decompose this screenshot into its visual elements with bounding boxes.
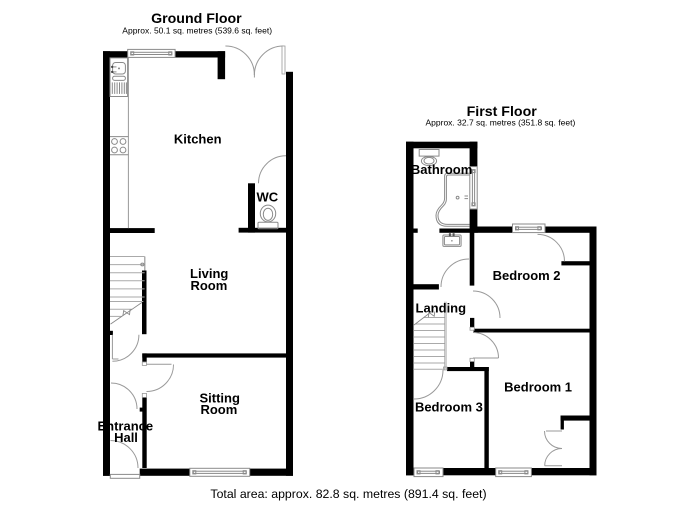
svg-text:Approx. 50.1 sq. metres (539.6: Approx. 50.1 sq. metres (539.6 sq. feet)	[122, 25, 272, 35]
svg-text:Bedroom 2: Bedroom 2	[493, 268, 561, 283]
svg-text:Approx. 32.7 sq. metres (351.8: Approx. 32.7 sq. metres (351.8 sq. feet)	[426, 117, 576, 127]
svg-text:Bedroom 3: Bedroom 3	[415, 400, 483, 415]
svg-text:Bathroom: Bathroom	[411, 162, 472, 177]
svg-text:Room: Room	[190, 278, 227, 293]
svg-text:Hall: Hall	[114, 430, 138, 445]
svg-text:Kitchen: Kitchen	[174, 132, 222, 147]
svg-text:Bedroom 1: Bedroom 1	[504, 380, 572, 395]
svg-text:WC: WC	[256, 189, 278, 204]
svg-text:Total area: approx. 82.8 sq. m: Total area: approx. 82.8 sq. metres (891…	[210, 487, 486, 501]
svg-text:Landing: Landing	[416, 301, 467, 316]
svg-text:Room: Room	[200, 402, 237, 417]
